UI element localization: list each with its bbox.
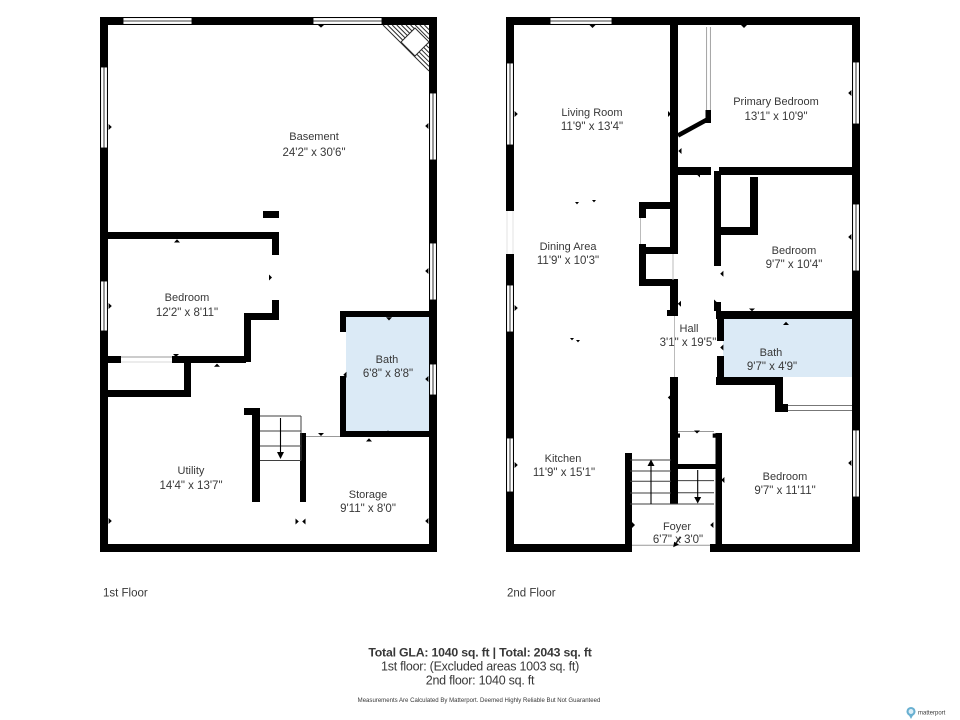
svg-text:Basement: Basement xyxy=(289,131,339,143)
svg-text:Dining Area: Dining Area xyxy=(540,241,598,253)
svg-text:14'4" x 13'7": 14'4" x 13'7" xyxy=(159,480,222,492)
svg-text:Utility: Utility xyxy=(178,465,205,477)
svg-text:Bedroom: Bedroom xyxy=(763,471,808,483)
svg-text:24'2" x 30'6": 24'2" x 30'6" xyxy=(282,147,345,159)
svg-text:matterport: matterport xyxy=(918,711,946,717)
svg-text:3'1" x 19'5": 3'1" x 19'5" xyxy=(660,337,717,349)
svg-text:Storage: Storage xyxy=(349,489,388,501)
svg-text:Living Room: Living Room xyxy=(561,107,622,119)
svg-text:2nd Floor: 2nd Floor xyxy=(507,588,556,600)
svg-text:1st Floor: 1st Floor xyxy=(103,588,148,600)
svg-text:13'1" x 10'9": 13'1" x 10'9" xyxy=(744,111,807,123)
svg-text:Bath: Bath xyxy=(760,347,783,359)
svg-text:6'7" x 3'0": 6'7" x 3'0" xyxy=(653,534,703,546)
svg-text:9'7" x 10'4": 9'7" x 10'4" xyxy=(766,259,823,271)
svg-text:11'9" x 10'3": 11'9" x 10'3" xyxy=(537,255,599,267)
svg-text:1st floor: (Excluded areas 100: 1st floor: (Excluded areas 1003 sq. ft) xyxy=(381,660,579,674)
svg-text:11'9" x 15'1": 11'9" x 15'1" xyxy=(533,467,595,479)
svg-text:Measurements Are Calculated By: Measurements Are Calculated By Matterpor… xyxy=(358,698,601,704)
svg-text:2nd floor: 1040 sq. ft: 2nd floor: 1040 sq. ft xyxy=(426,674,535,688)
svg-text:Bedroom: Bedroom xyxy=(772,245,817,257)
svg-text:Bath: Bath xyxy=(376,354,399,366)
svg-text:Primary Bedroom: Primary Bedroom xyxy=(733,96,819,108)
svg-text:Hall: Hall xyxy=(680,323,699,335)
svg-text:Total GLA: 1040 sq. ft | Total: Total GLA: 1040 sq. ft | Total: 2043 sq.… xyxy=(368,646,591,660)
svg-text:6'8" x 8'8": 6'8" x 8'8" xyxy=(363,368,413,380)
svg-text:9'7" x 11'11": 9'7" x 11'11" xyxy=(754,485,815,497)
svg-text:9'11" x 8'0": 9'11" x 8'0" xyxy=(340,503,396,515)
svg-text:Bedroom: Bedroom xyxy=(165,292,210,304)
svg-text:9'7" x 4'9": 9'7" x 4'9" xyxy=(747,361,797,373)
svg-text:11'9" x 13'4": 11'9" x 13'4" xyxy=(561,121,623,133)
svg-text:12'2" x 8'11": 12'2" x 8'11" xyxy=(156,307,218,319)
svg-text:Foyer: Foyer xyxy=(663,521,691,533)
svg-text:Kitchen: Kitchen xyxy=(545,453,582,465)
